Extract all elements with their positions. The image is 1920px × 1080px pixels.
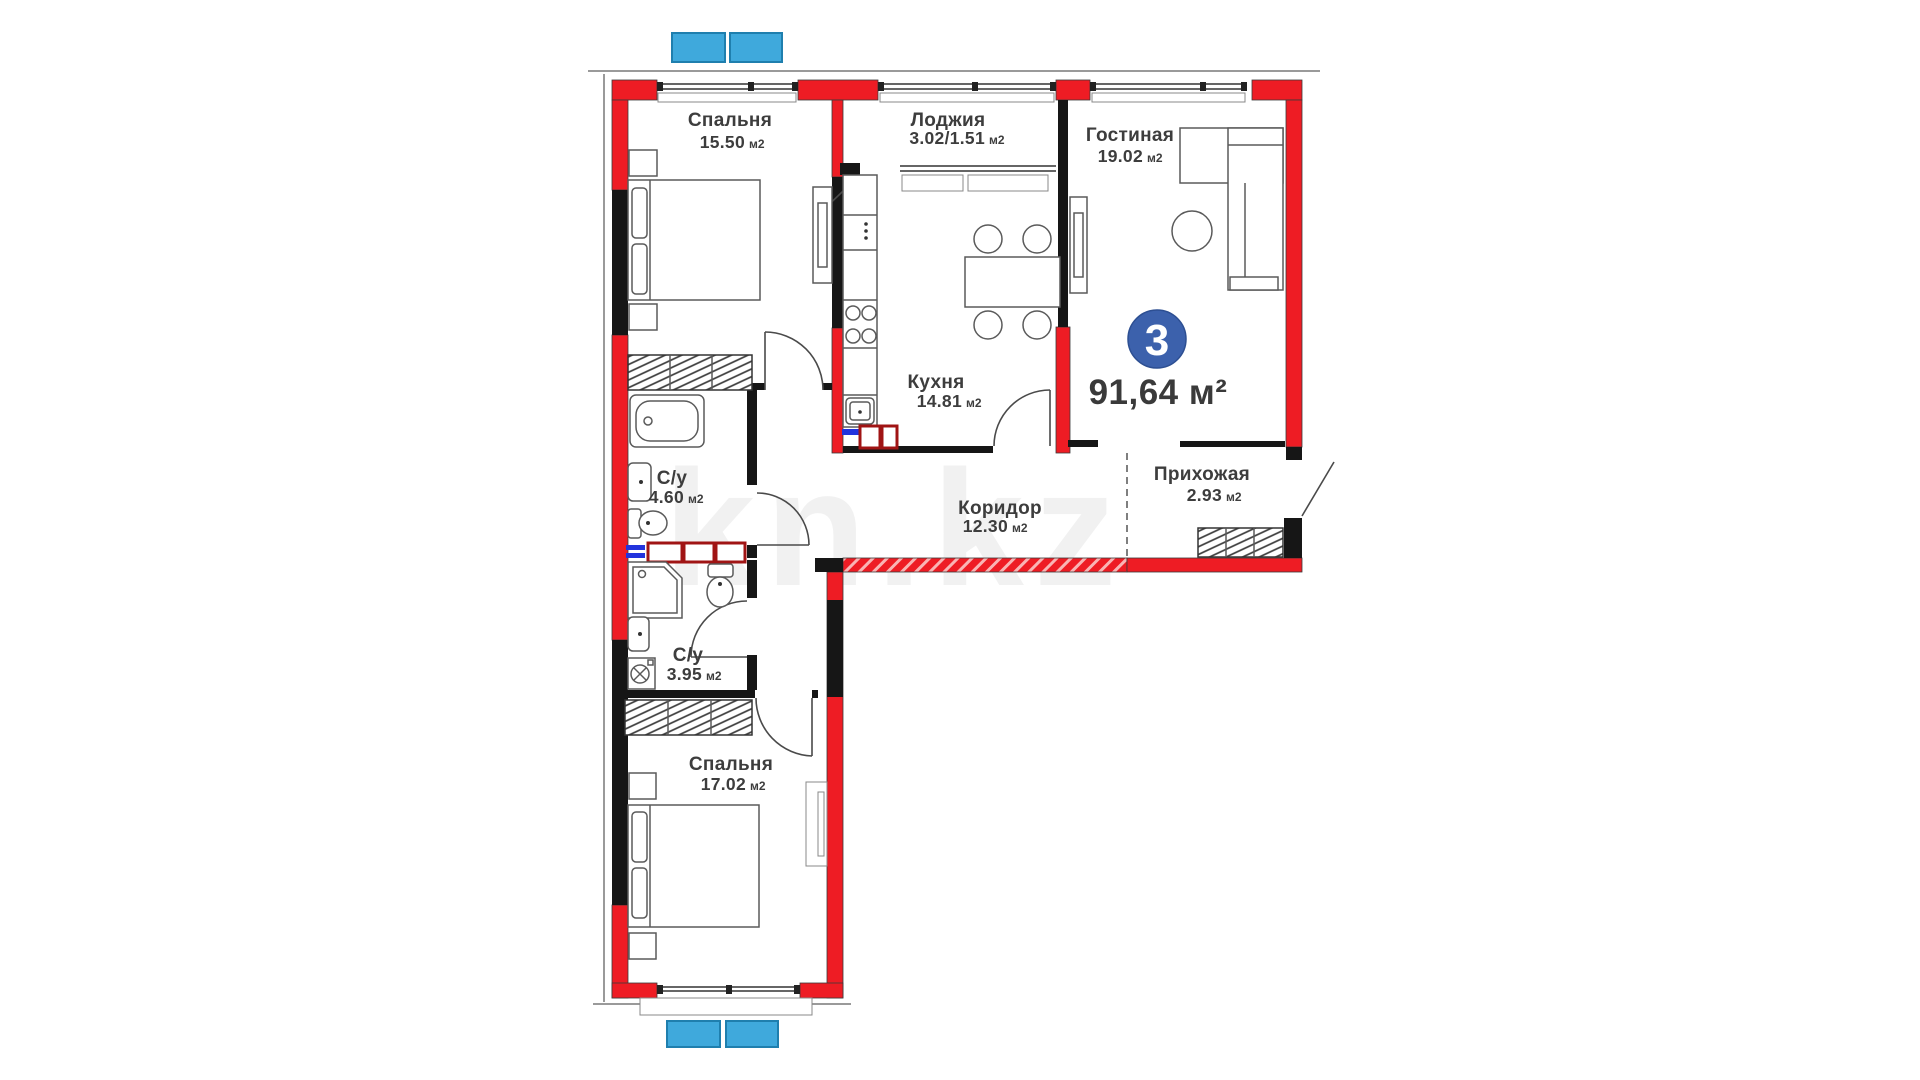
nightstand [629, 304, 657, 330]
dresser [813, 187, 832, 283]
room-area-unit: м2 [1226, 490, 1242, 504]
room-area-unit: м2 [688, 492, 704, 506]
room-name: С/у [673, 645, 704, 666]
label-living: Гостиная 19.02 м2 [1086, 125, 1174, 166]
bathtub [630, 395, 704, 447]
room-area-unit: м2 [706, 669, 722, 683]
chair [1023, 311, 1051, 339]
closet-hatched [628, 355, 752, 390]
sink [628, 463, 651, 501]
room-name: С/у [657, 468, 688, 489]
hallway-wardrobe [1198, 528, 1283, 557]
nightstand [629, 773, 656, 799]
label-hallway: Прихожая 2.93 м2 [1154, 464, 1250, 505]
floorplan-page: kn.kz [0, 0, 1920, 1080]
label-loggia: Лоджия 3.02/1.51 м2 [909, 110, 1005, 148]
bedroom2-furniture [625, 700, 759, 959]
pillow [632, 812, 647, 862]
chair [974, 225, 1002, 253]
toilet [628, 509, 667, 538]
corner-sofa [1180, 128, 1283, 290]
room-area: 19.02 [1098, 146, 1143, 166]
chair [974, 311, 1002, 339]
room-name: Кухня [907, 372, 964, 393]
window-bedroom2 [640, 985, 812, 1015]
nightstand [629, 933, 656, 959]
room-area-unit: м2 [1147, 151, 1163, 165]
label-kitchen: Кухня 14.81 м2 [907, 372, 981, 411]
balcony-marker-top-left [672, 33, 725, 62]
room-area: 15.50 [700, 132, 745, 152]
room-area: 2.93 [1187, 485, 1222, 505]
coffee-table [1172, 211, 1212, 251]
room-area-unit: м2 [989, 133, 1005, 147]
label-bedroom2: Спальня 17.02 м2 [689, 754, 773, 794]
room-name: Гостиная [1086, 125, 1174, 146]
window-loggia [878, 82, 1056, 102]
room-area-unit: м2 [966, 396, 982, 410]
closet-hatched [625, 700, 752, 735]
room-area-unit: м2 [1012, 521, 1028, 535]
label-bedroom1: Спальня 15.50 м2 [688, 110, 772, 152]
label-bathroom2: С/у 3.95 м2 [667, 645, 722, 684]
room-area: 4.60 [649, 487, 684, 507]
kitchen-sink [846, 398, 874, 424]
chair [1023, 225, 1051, 253]
pillow [632, 868, 647, 918]
room-name: Спальня [688, 110, 772, 131]
total-area: 91,64 м² [1089, 373, 1228, 412]
shower [628, 562, 682, 618]
floor-plan-svg: kn.kz [0, 0, 1920, 1080]
window-living [1090, 82, 1247, 102]
apartment-summary: 3 91,64 м² [1089, 310, 1228, 412]
sink [628, 617, 649, 651]
room-area: 3.02/1.51 [909, 128, 985, 148]
window-bedroom2-side [806, 782, 827, 866]
room-area: 14.81 [917, 391, 962, 411]
entrance-door-leaf [1302, 462, 1334, 516]
rooms-count: 3 [1145, 316, 1169, 365]
room-name: Прихожая [1154, 464, 1250, 485]
window-bedroom1 [657, 82, 798, 102]
toilet [707, 564, 733, 607]
nightstand [629, 150, 657, 176]
room-area: 12.30 [963, 516, 1008, 536]
corridor-south-wall [843, 558, 1127, 572]
room-area: 17.02 [701, 774, 746, 794]
dining-table [965, 225, 1060, 339]
balcony-marker-bottom-left [667, 1021, 720, 1047]
bedroom1-furniture [628, 150, 832, 390]
bed [628, 180, 760, 300]
door-bedroom2 [756, 698, 812, 756]
pillow [632, 244, 647, 294]
kitchen-counter [843, 175, 877, 427]
balcony-marker-bottom-right [726, 1021, 778, 1047]
vent-shaft-row [626, 543, 745, 562]
balcony-marker-top-right [730, 33, 782, 62]
room-area: 3.95 [667, 664, 702, 684]
room-name: Спальня [689, 754, 773, 775]
pillow [632, 188, 647, 238]
door-bedroom1 [765, 332, 823, 390]
tv-stand [1070, 197, 1087, 293]
room-area-unit: м2 [749, 137, 765, 151]
room-area-unit: м2 [750, 779, 766, 793]
washing-machine [628, 658, 655, 689]
